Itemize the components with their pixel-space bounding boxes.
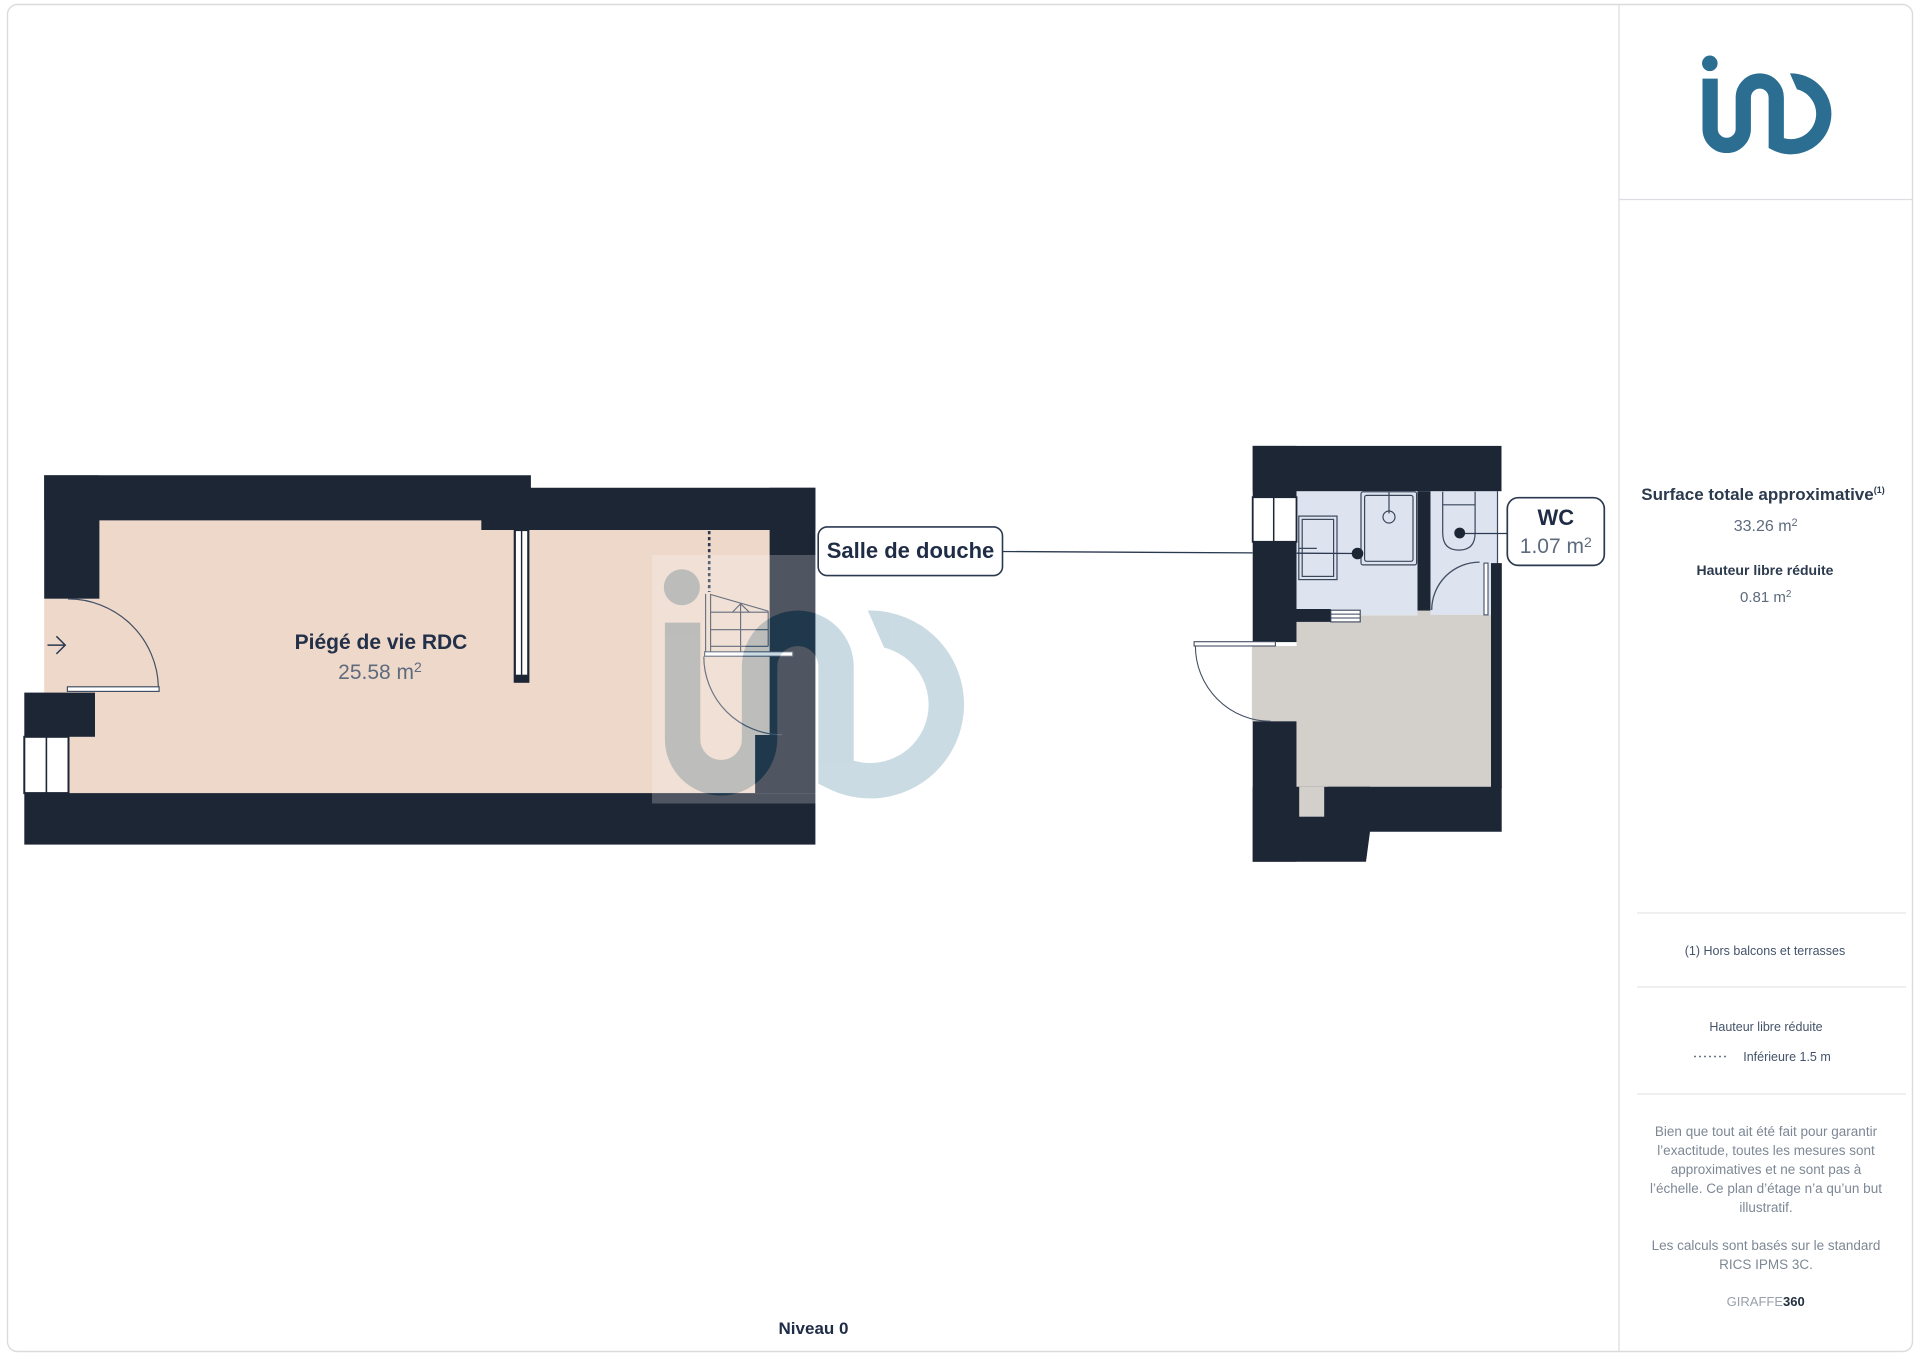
svg-text:WC: WC [1537,505,1574,530]
svg-text:Hauteur libre réduite: Hauteur libre réduite [1709,1020,1822,1034]
svg-text:Bien que tout ait été fait pou: Bien que tout ait été fait pour garantir [1655,1124,1878,1139]
svg-text:0.81 m2: 0.81 m2 [1740,589,1792,606]
svg-text:Les calculs sont basés sur le: Les calculs sont basés sur le standard [1652,1238,1881,1253]
svg-text:RICS IPMS 3C.: RICS IPMS 3C. [1719,1257,1813,1272]
svg-text:33.26 m2: 33.26 m2 [1734,517,1798,535]
svg-text:Hauteur libre réduite: Hauteur libre réduite [1697,562,1834,578]
svg-text:Niveau 0: Niveau 0 [779,1319,849,1338]
svg-text:GIRAFFE360: GIRAFFE360 [1727,1294,1805,1309]
svg-text:Piégé de vie RDC: Piégé de vie RDC [295,631,468,654]
svg-text:(1) Hors balcons et terrasses: (1) Hors balcons et terrasses [1685,944,1845,958]
svg-text:Surface totale approximative(1: Surface totale approximative(1) [1641,485,1884,504]
svg-text:l’exactitude, toutes les mesur: l’exactitude, toutes les mesures sont [1657,1143,1875,1158]
svg-text:25.58 m2: 25.58 m2 [338,659,422,684]
svg-text:approximatives et ne sont pas: approximatives et ne sont pas à [1671,1162,1862,1177]
svg-text:Inférieure 1.5 m: Inférieure 1.5 m [1743,1050,1831,1064]
svg-text:l’échelle. Ce plan d’étage n’a: l’échelle. Ce plan d’étage n’a qu’un but [1650,1181,1882,1196]
svg-text:Salle de douche: Salle de douche [827,538,995,563]
svg-text:illustratif.: illustratif. [1739,1200,1792,1215]
svg-text:1.07 m2: 1.07 m2 [1520,534,1592,558]
